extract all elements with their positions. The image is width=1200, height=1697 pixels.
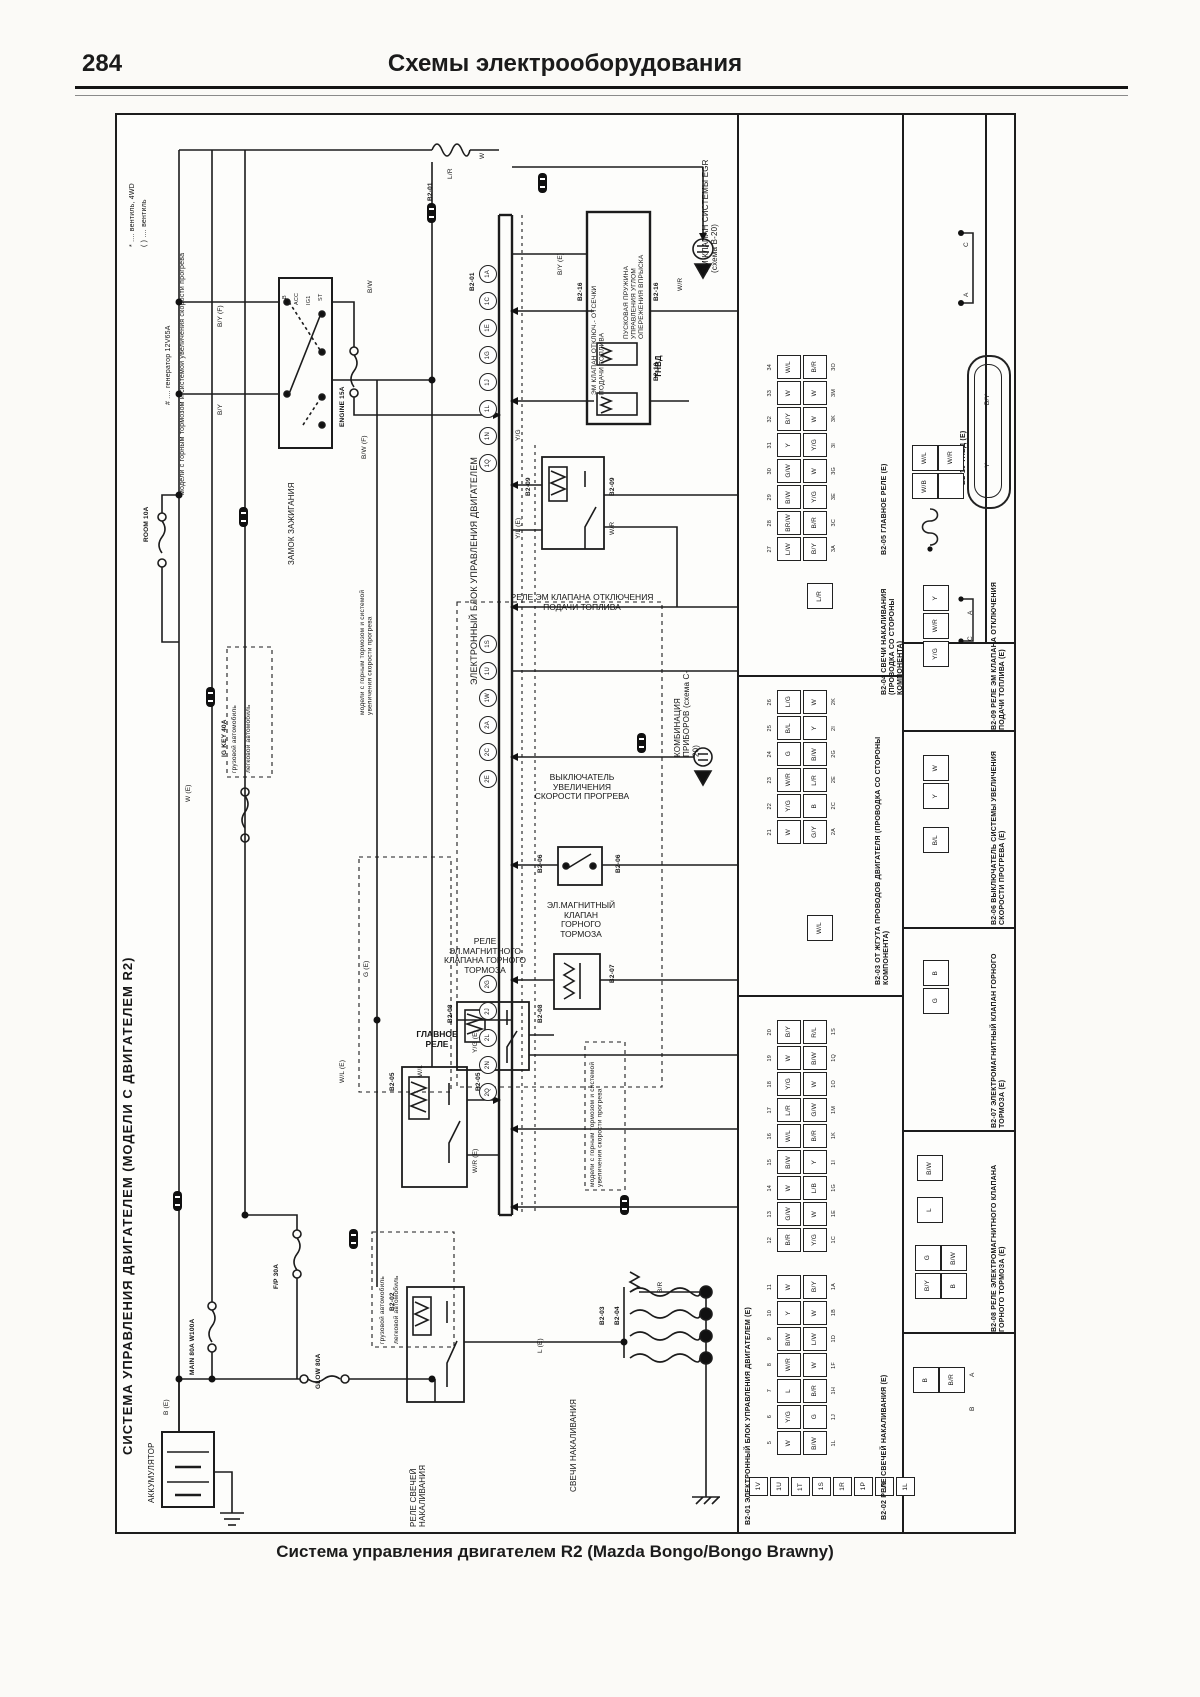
pin-cell: B/Y bbox=[785, 1026, 792, 1037]
panel-divider bbox=[902, 1332, 1014, 1334]
pin-number: 1Q bbox=[831, 1054, 837, 1062]
pin-number: 3A bbox=[831, 545, 837, 552]
fuel-cut-relay bbox=[542, 457, 604, 549]
pin-cell: W bbox=[811, 468, 818, 474]
pin-cell: Y bbox=[932, 794, 939, 799]
pin-cell: W/L bbox=[921, 452, 928, 464]
pin-cell: L/G bbox=[785, 696, 792, 707]
pin-cell: L/R bbox=[785, 1105, 792, 1116]
pin-number: 2A bbox=[831, 828, 837, 835]
pin-number: 1T bbox=[797, 1483, 804, 1491]
wire-code-label: W/R (E) bbox=[472, 1137, 479, 1173]
pin-number: 3E bbox=[831, 493, 837, 500]
advance-valve-label: ПУСКОВАЯ ПРУЖИНА УПРАВЛЕНИЯ УГЛОМ ОПЕРЕЖ… bbox=[623, 227, 651, 339]
inline-connector-icon bbox=[349, 1229, 358, 1249]
pin-number: 1K bbox=[831, 1132, 837, 1139]
pin-table-row: 18 Y/G W 1O bbox=[765, 1072, 839, 1096]
pigtail-squiggle-icon bbox=[917, 507, 943, 553]
pin-number: 1S bbox=[818, 1482, 825, 1490]
pin-cell: B/Y bbox=[811, 1281, 818, 1292]
ecu-pin: 1C bbox=[479, 292, 497, 310]
pin-number: 26 bbox=[767, 699, 773, 706]
pin-table-row: 29 B/W Y/G 3E bbox=[765, 485, 839, 509]
panel-caption: B2-09 РЕЛЕ ЭМ КЛАПАНА ОТКЛЮЧЕНИЯ ПОДАЧИ … bbox=[991, 570, 1013, 730]
inline-connector-icon bbox=[173, 1191, 182, 1211]
pin-number: 1D bbox=[831, 1335, 837, 1342]
pin-number: 1B bbox=[831, 1309, 837, 1316]
pin-cell: G bbox=[785, 751, 792, 756]
pin-number: 34 bbox=[767, 364, 773, 371]
variant-note: модели с горным тормозом и системой увел… bbox=[589, 1047, 619, 1187]
pin-number: 1O bbox=[831, 1080, 837, 1088]
pin-cell: Y bbox=[785, 1311, 792, 1316]
pin-number: 17 bbox=[767, 1107, 773, 1114]
wire-code-label: B/R bbox=[657, 1265, 664, 1293]
pin-cell: L/W bbox=[785, 543, 792, 555]
truck-note: грузовой автомобиль bbox=[379, 1239, 386, 1344]
pin-cell: B/L bbox=[932, 835, 939, 845]
pin-cell: W/L bbox=[785, 361, 792, 373]
ecu-pin: 1W bbox=[479, 689, 497, 707]
pin-cell: Y bbox=[811, 1160, 818, 1165]
pin-cell: B/R bbox=[948, 1374, 955, 1385]
pin-table-row: 12 B/R Y/G 1C bbox=[765, 1228, 839, 1252]
ignition-label: ЗАМОК ЗАЖИГАНИЯ bbox=[287, 455, 296, 565]
pin-cell: R/L bbox=[811, 1027, 818, 1038]
pin-number: 1R bbox=[839, 1482, 846, 1491]
connector-id-label: B2-05 bbox=[389, 1055, 396, 1091]
pin-cell: L bbox=[926, 1208, 933, 1212]
panel-caption: B2-06 ВЫКЛЮЧАТЕЛЬ СИСТЕМЫ УВЕЛИЧЕНИЯ СКО… bbox=[991, 735, 1013, 925]
wire-code-label: B/W bbox=[367, 263, 374, 293]
pin-table-row: 28 BR/W B/R 3C bbox=[765, 511, 839, 535]
pin-cell: W bbox=[811, 416, 818, 422]
connector-id-label: B2-07 bbox=[609, 947, 616, 983]
footnote: * .... вентиль, 4WD bbox=[129, 137, 137, 247]
connector-face-b203: W/L bbox=[807, 915, 831, 941]
pin-number: 8 bbox=[767, 1363, 773, 1366]
pin-number: 1H bbox=[831, 1387, 837, 1394]
pin-number: 3K bbox=[831, 415, 837, 422]
wiring-diagram-frame: СИСТЕМА УПРАВЛЕНИЯ ДВИГАТЕЛЕМ (МОДЕЛИ С … bbox=[115, 113, 1016, 1534]
pin-cell: B/R bbox=[811, 517, 818, 528]
pin-table-row: 9 B/W L/W 1D bbox=[765, 1327, 839, 1351]
inline-connector-icon bbox=[538, 173, 547, 193]
wire-code-label: W bbox=[479, 139, 486, 159]
fuse-label: ENGINE 15A bbox=[339, 347, 346, 427]
pin-cell: B/Y bbox=[785, 413, 792, 424]
pin-number: 31 bbox=[767, 442, 773, 449]
connector-face-b208a: B/W bbox=[917, 1155, 941, 1181]
pin-cell: G bbox=[932, 998, 939, 1003]
connector-id-label: B2-02 bbox=[389, 1275, 396, 1311]
pin-table-row: 34 W/L B/R 3O bbox=[765, 355, 839, 379]
pin-number: 25 bbox=[767, 725, 773, 732]
pin-number: 23 bbox=[767, 777, 773, 784]
pin-number: 1E bbox=[831, 1210, 837, 1217]
connector-face-b207: BG bbox=[923, 960, 947, 1014]
ecu-pin: 2N bbox=[479, 1056, 497, 1074]
pin-cell: G/W bbox=[811, 1103, 818, 1117]
pin-cell: W bbox=[811, 699, 818, 705]
wire-code-label: L/R bbox=[447, 153, 454, 179]
ecu-pin: 1G bbox=[479, 346, 497, 364]
variant-note: модели с горным тормозом и системой увел… bbox=[359, 565, 389, 715]
wire-code-label: Y/G bbox=[515, 413, 522, 441]
ecu-pin: 2G bbox=[479, 975, 497, 993]
pin-cell: B bbox=[922, 1378, 929, 1383]
pin-number: 20 bbox=[767, 1029, 773, 1036]
pin-cell: W/R bbox=[932, 619, 939, 632]
connector-id-label: B2-04 bbox=[614, 1289, 621, 1325]
pin-table-row: 23 W/R L/R 2E bbox=[765, 768, 839, 792]
pin-number: 30 bbox=[767, 468, 773, 475]
pin-cell: B/W bbox=[811, 1052, 818, 1065]
pin-cell: B/W bbox=[926, 1162, 933, 1175]
pin-table-row: 21 W G/Y 2A bbox=[765, 820, 839, 844]
ecu-pin-group: 1S1U1W2A2C2E bbox=[479, 635, 497, 797]
wire-code-label: B/W (F) bbox=[361, 423, 368, 459]
pin-table: 11 W B/Y 1A 10 Y W 1B 9 B/W L/W 1D 8 W/R… bbox=[765, 1275, 839, 1455]
pin-number: 2E bbox=[831, 776, 837, 783]
fuse-label: MAIN 80A W100A bbox=[189, 1295, 207, 1375]
ecu-pin: 2A bbox=[479, 716, 497, 734]
pin-cell: Y bbox=[785, 443, 792, 448]
pin-number: 1U bbox=[776, 1482, 783, 1491]
wire-code-label: W (E) bbox=[185, 770, 192, 802]
ecu-pin: 1U bbox=[479, 662, 497, 680]
pin-cell: BR/W bbox=[785, 514, 792, 532]
pin-cell: B/Y bbox=[984, 394, 991, 405]
pin-cell: W bbox=[785, 390, 792, 396]
pin-number: 2C bbox=[831, 802, 837, 809]
pin-cell: Y/G bbox=[811, 1234, 818, 1246]
pin-cell: B/R bbox=[811, 361, 818, 372]
panel-caption: B2-08 РЕЛЕ ЭЛЕКТРОМАГНИТНОГО КЛАПАНА ГОР… bbox=[991, 1137, 1013, 1332]
pin-number: 16 bbox=[767, 1133, 773, 1140]
mb-relay-label: РЕЛЕ ЭЛ.МАГНИТНОГО КЛАПАНА ГОРНОГО ТОРМО… bbox=[437, 937, 533, 975]
pin-number: 3O bbox=[831, 363, 837, 371]
pin-cell: W/R bbox=[947, 451, 954, 464]
connector-face-b209: YW/RY/G bbox=[923, 585, 947, 667]
pin-number: 21 bbox=[767, 829, 773, 836]
warm-switch-label: ВЫКЛЮЧАТЕЛЬ УВЕЛИЧЕНИЯ СКОРОСТИ ПРОГРЕВА bbox=[530, 773, 634, 802]
page-title: Схемы электрооборудования bbox=[0, 50, 1130, 78]
wire-code-label: W/L (E) bbox=[339, 1047, 346, 1083]
panel-divider bbox=[902, 730, 1014, 732]
pin-cell: W bbox=[785, 1185, 792, 1191]
pin-number: 14 bbox=[767, 1185, 773, 1192]
combo-label: КОМБИНАЦИЯ ПРИБОРОВ (схема C-20) bbox=[673, 667, 695, 757]
wire-code-label: W/R bbox=[677, 261, 684, 291]
connector-id-label: B2-08 bbox=[537, 987, 544, 1023]
connector-id-label: B2-01 bbox=[427, 165, 434, 201]
pin-cell: B/W bbox=[785, 1156, 792, 1169]
pin-table-row: 8 W/R W 1F bbox=[765, 1353, 839, 1377]
pin-number: 15 bbox=[767, 1159, 773, 1166]
ecu-pin: 1Q bbox=[479, 454, 497, 472]
connector-id-label: B2-16 bbox=[653, 265, 660, 301]
connector-face-b206: WY bbox=[923, 755, 947, 809]
warmup-speed-switch bbox=[558, 847, 602, 885]
pin-table-row: 14 W L/B 1G bbox=[765, 1176, 839, 1200]
wire-code-label: G (E) bbox=[363, 947, 370, 977]
pin-table-row: 27 L/W B/Y 3A bbox=[765, 537, 839, 561]
fuse-label: F/P 30A bbox=[273, 1225, 280, 1289]
car-note: легковой автомобиль bbox=[245, 653, 252, 773]
pin-number: 1G bbox=[831, 1184, 837, 1192]
pin-cell: B/W bbox=[811, 748, 818, 761]
pin-cell: Y/G bbox=[785, 800, 792, 812]
wire-code-label: B (E) bbox=[163, 1385, 170, 1415]
pin-number: 1L bbox=[831, 1440, 837, 1447]
panel-caption: B2-04 СВЕЧИ НАКАЛИВАНИЯ (ПРОВОДКА СО СТО… bbox=[881, 567, 903, 695]
header-rule bbox=[75, 86, 1128, 96]
pin-number: 13 bbox=[767, 1211, 773, 1218]
wire-code-label: W/R bbox=[609, 505, 616, 535]
ign-pos-label: IG1 bbox=[306, 283, 312, 305]
ecu-pin-group: 1A1C1E1G1J1L1N1Q bbox=[479, 265, 497, 481]
pin-cell: G bbox=[924, 1255, 931, 1260]
pin-table-row: 7 L B/R 1H bbox=[765, 1379, 839, 1403]
mb-valve-label: ЭЛ.МАГНИТНЫЙ КЛАПАН ГОРНОГО ТОРМОЗА bbox=[545, 901, 617, 939]
pin-cell: Y/G bbox=[785, 1078, 792, 1090]
pin-cell: G bbox=[811, 1414, 818, 1419]
pin-number: 1F bbox=[831, 1362, 837, 1369]
pin-cell: W bbox=[785, 1440, 792, 1446]
pin-number: 1J bbox=[831, 1414, 837, 1420]
pin-cell: B/R bbox=[811, 1130, 818, 1141]
mountain-brake-valve bbox=[554, 954, 600, 1009]
wire-code-label: Y/L (E) bbox=[515, 505, 522, 539]
fuse-engine-icon bbox=[350, 347, 358, 397]
terminal-letter: C bbox=[967, 627, 974, 641]
panel-caption: B2-01 ЭЛЕКТРОННЫЙ БЛОК УПРАВЛЕНИЯ ДВИГАТ… bbox=[745, 1135, 765, 1525]
pin-cell: W/R bbox=[785, 1358, 792, 1371]
pin-number: 33 bbox=[767, 390, 773, 397]
panel-divider bbox=[737, 675, 902, 677]
wire-code-label: B/Y bbox=[217, 385, 224, 415]
pin-table: 20 B/Y R/L 1S 19 W B/W 1Q 18 Y/G W 1O 17… bbox=[765, 1020, 839, 1252]
pin-cell: W bbox=[811, 1081, 818, 1087]
fuse-label: GLOW 80A bbox=[315, 1329, 322, 1389]
pin-cell: L/B bbox=[811, 1183, 818, 1193]
pin-number: 7 bbox=[767, 1389, 773, 1392]
pin-table-row: 33 W W 3M bbox=[765, 381, 839, 405]
pin-number: 1I bbox=[831, 1160, 837, 1165]
pin-table-row: 24 G B/W 2G bbox=[765, 742, 839, 766]
pin-number: 3C bbox=[831, 519, 837, 526]
pin-cell: W bbox=[785, 829, 792, 835]
connector-face-b205: W/LW/RW/B bbox=[912, 445, 962, 499]
terminal-letter: A bbox=[963, 283, 970, 297]
connector-id-label: B2-10 bbox=[653, 345, 660, 381]
manual-page: 284 Схемы электрооборудования bbox=[0, 0, 1200, 1697]
fuelcut-relay-label: РЕЛЕ ЭМ КЛАПАНА ОТКЛЮЧЕНИЯ ПОДАЧИ ТОПЛИВ… bbox=[502, 593, 662, 612]
footnote: # .... генератор 12V65A bbox=[165, 175, 173, 405]
pin-table-row: 26 L/G W 2K bbox=[765, 690, 839, 714]
fuse-main-icon bbox=[208, 1302, 216, 1352]
glow-plugs-label: СВЕЧИ НАКАЛИВАНИЯ bbox=[569, 1397, 591, 1492]
cutoff-valve-label: ЭМ КЛАПАН ОТКЛЮЧ.- ОТСЕЧКИ ПОДАЧИ ТОПЛИВ… bbox=[591, 265, 615, 395]
pin-cell: B/L bbox=[785, 723, 792, 733]
pin-cell: L/W bbox=[811, 1333, 818, 1345]
pin-table-row: 16 W/L B/R 1K bbox=[765, 1124, 839, 1148]
junction-dots bbox=[176, 299, 628, 1383]
pin-table-row: 5 W B/W 1L bbox=[765, 1431, 839, 1455]
pin-number: 5 bbox=[767, 1441, 773, 1444]
pin-table-row: 20 B/Y R/L 1S bbox=[765, 1020, 839, 1044]
pin-number: 1A bbox=[831, 1283, 837, 1290]
pin-cell: L/R bbox=[816, 591, 823, 602]
connector-id-label: B2-08 bbox=[447, 987, 454, 1023]
connector-face-b208b: L bbox=[917, 1197, 941, 1223]
ecu-pin: 2L bbox=[479, 1029, 497, 1047]
main-relay-label: ГЛАВНОЕ РЕЛЕ bbox=[407, 1030, 467, 1049]
pin-cell: W bbox=[932, 765, 939, 771]
panel-caption: B2-03 ОТ ЖГУТА ПРОВОДОВ ДВИГАТЕЛЯ (ПРОВО… bbox=[875, 705, 899, 985]
connector-id-label: B2-06 bbox=[537, 837, 544, 873]
pin-cell: Y/G bbox=[785, 1411, 792, 1423]
connector-id-label: B2-16 bbox=[577, 265, 584, 301]
pin-number: 18 bbox=[767, 1081, 773, 1088]
pin-cell: B/Y bbox=[811, 543, 818, 554]
connector-id-label: B2-06 bbox=[615, 837, 622, 873]
pin-number: 6 bbox=[767, 1415, 773, 1418]
pin-cell: L bbox=[785, 1389, 792, 1393]
pin-number: 12 bbox=[767, 1237, 773, 1244]
fuse-label: IG KEY 40A bbox=[221, 677, 228, 757]
connector-id-label: B2-09 bbox=[609, 460, 616, 496]
pin-cell: W/L bbox=[785, 1130, 792, 1142]
pin-number: 1S bbox=[831, 1028, 837, 1035]
pin-cell: B/W bbox=[950, 1252, 957, 1265]
connector-id-label: B2-09 bbox=[525, 460, 532, 496]
pin-cell: G/W bbox=[785, 464, 792, 478]
egr-label: ЭМ КЛАПАН СИСТЕМЫ EGR (схема B-20) bbox=[701, 155, 723, 273]
pin-cell: G/Y bbox=[811, 826, 818, 838]
terminal-letter: B bbox=[969, 1397, 976, 1411]
panel-divider bbox=[902, 927, 1014, 929]
footnote: модели с горным тормозом и системой увел… bbox=[179, 175, 201, 495]
wire-code-label: L (E) bbox=[537, 1323, 544, 1353]
ecu-pin: 2J bbox=[479, 1002, 497, 1020]
pin-cell: W bbox=[811, 390, 818, 396]
inline-connector-icon bbox=[620, 1195, 629, 1215]
ecu-pin: 1N bbox=[479, 427, 497, 445]
fuse-glow-icon bbox=[300, 1375, 349, 1383]
pin-number: 3M bbox=[831, 389, 837, 397]
panel-caption: B2-07 ЭЛЕКТРОМАГНИТНЫЙ КЛАПАН ГОРНОГО ТО… bbox=[991, 933, 1013, 1128]
ecu-pin: 2E bbox=[479, 770, 497, 788]
inline-connector-icon bbox=[206, 687, 215, 707]
ecu-label: ЭЛЕКТРОННЫЙ БЛОК УПРАВЛЕНИЯ ДВИГАТЕЛЕМ bbox=[469, 355, 479, 685]
pin-number: 19 bbox=[767, 1055, 773, 1062]
pin-number: 28 bbox=[767, 520, 773, 527]
pin-number: 2I bbox=[831, 726, 837, 731]
panel-divider bbox=[902, 1130, 1014, 1132]
inline-connector-icon bbox=[637, 733, 646, 753]
connector-id-label: B2-03 bbox=[599, 1289, 606, 1325]
pin-table-row: 17 L/R G/W 1M bbox=[765, 1098, 839, 1122]
pin-table: 34 W/L B/R 3O 33 W W 3M 32 B/Y W 3K 31 Y… bbox=[765, 355, 839, 561]
glow-relay-label: РЕЛЕ СВЕЧЕЙ НАКАЛИВАНИЯ bbox=[409, 1407, 431, 1527]
pin-table-row: 19 W B/W 1Q bbox=[765, 1046, 839, 1070]
pin-cell: Y bbox=[932, 596, 939, 601]
pin-number: 3I bbox=[831, 443, 837, 448]
pin-number: 1C bbox=[831, 1236, 837, 1243]
pin-number: 2G bbox=[831, 750, 837, 758]
pin-cell: B/W bbox=[785, 491, 792, 504]
pin-table-row: 15 B/W Y 1I bbox=[765, 1150, 839, 1174]
panel-divider bbox=[902, 115, 904, 1532]
pin-table-row: 11 W B/Y 1A bbox=[765, 1275, 839, 1299]
pin-cell: W/L bbox=[816, 922, 823, 934]
spine-title: СИСТЕМА УПРАВЛЕНИЯ ДВИГАТЕЛЕМ (МОДЕЛИ С … bbox=[121, 875, 136, 1455]
panel-caption: B2-05 ГЛАВНОЕ РЕЛЕ (E) bbox=[881, 370, 901, 555]
ecu-pin: 2Q bbox=[479, 1083, 497, 1101]
pin-cell: B/R bbox=[785, 1234, 792, 1245]
pin-table-row: 30 G/W W 3G bbox=[765, 459, 839, 483]
battery-label: АККУМУЛЯТОР bbox=[147, 1411, 156, 1503]
truck-note: грузовой автомобиль bbox=[231, 653, 238, 773]
wire-code-label: B/Y (E) bbox=[557, 239, 564, 275]
fuse-room-icon bbox=[158, 513, 166, 567]
connector-face-b204: L/R bbox=[807, 583, 831, 609]
pin-number: 11 bbox=[767, 1284, 773, 1290]
pin-number: 32 bbox=[767, 416, 773, 423]
footnote: ( ) .... вентиль bbox=[141, 137, 149, 247]
wire-code-label: W/L bbox=[417, 1047, 424, 1077]
inline-connector-icon bbox=[427, 203, 436, 223]
ign-pos-label: ST bbox=[318, 283, 324, 301]
pin-cell: B bbox=[932, 971, 939, 976]
pin-cell: L/R bbox=[811, 775, 818, 786]
ground-icon bbox=[220, 1497, 720, 1525]
panel-divider bbox=[737, 995, 902, 997]
terminal-letter: A bbox=[967, 601, 974, 615]
pin-cell: Y bbox=[811, 726, 818, 731]
pin-number: 22 bbox=[767, 803, 773, 810]
pin-table-row: 32 B/Y W 3K bbox=[765, 407, 839, 431]
connector-face-b206b: B/L bbox=[923, 827, 947, 853]
ecu-pin: 1J bbox=[479, 373, 497, 391]
pin-number: 2K bbox=[831, 698, 837, 705]
ign-pos-label: B bbox=[282, 283, 288, 299]
pin-table-row: 10 Y W 1B bbox=[765, 1301, 839, 1325]
pin-number: 29 bbox=[767, 494, 773, 501]
battery-icon bbox=[162, 1432, 214, 1507]
pin-cell: Y/G bbox=[811, 491, 818, 503]
pin-table-row: 31 Y Y/G 3I bbox=[765, 433, 839, 457]
pin-number: 27 bbox=[767, 546, 773, 553]
pin-cell: W bbox=[811, 1310, 818, 1316]
ecu-pin: 1A bbox=[479, 265, 497, 283]
pin-cell: W bbox=[785, 1284, 792, 1290]
ecu-pin: 2C bbox=[479, 743, 497, 761]
ecu-pin-group: 2G2J2L2N2Q bbox=[479, 975, 497, 1110]
glow-plugs-icon bbox=[630, 1272, 712, 1364]
pin-cell: B/W bbox=[811, 1437, 818, 1450]
panel-divider bbox=[737, 115, 739, 1532]
pin-cell: B bbox=[811, 804, 818, 809]
wire-code-label: B/Y (F) bbox=[217, 293, 224, 327]
pin-number: 1P bbox=[860, 1482, 867, 1490]
terminal-letter: C bbox=[963, 233, 970, 247]
terminal-letter: A bbox=[969, 1363, 976, 1377]
connector-face-b202: BB/R bbox=[913, 1367, 963, 1393]
pin-cell: Y/G bbox=[932, 648, 939, 660]
